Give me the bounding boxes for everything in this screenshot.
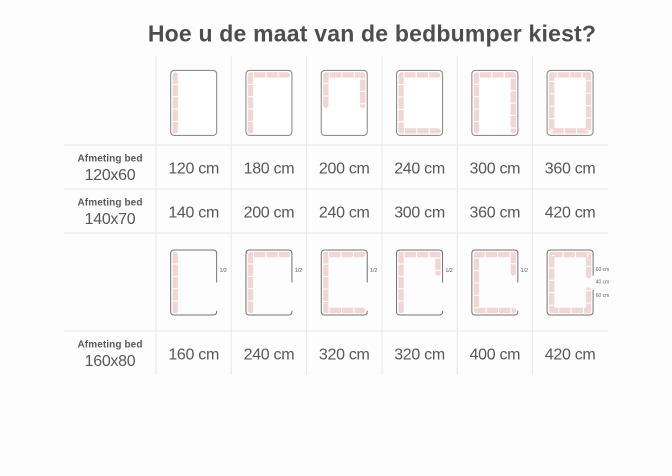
svg-text:140x70: 140x70 (85, 211, 136, 228)
svg-text:60 cm: 60 cm (596, 267, 610, 273)
svg-text:Afmeting bed: Afmeting bed (77, 198, 142, 209)
svg-text:240 cm: 240 cm (244, 346, 295, 363)
svg-text:420 cm: 420 cm (545, 204, 596, 221)
svg-text:200 cm: 200 cm (244, 204, 295, 221)
svg-text:240 cm: 240 cm (319, 204, 370, 221)
svg-text:240 cm: 240 cm (394, 160, 445, 177)
svg-text:180 cm: 180 cm (244, 160, 295, 177)
svg-text:140 cm: 140 cm (168, 204, 219, 221)
svg-text:300 cm: 300 cm (470, 160, 521, 177)
svg-text:1/2: 1/2 (295, 268, 302, 274)
svg-text:160 cm: 160 cm (168, 346, 219, 363)
svg-text:360 cm: 360 cm (470, 204, 521, 221)
svg-text:200 cm: 200 cm (319, 160, 370, 177)
svg-text:Hoe u de maat van de bedbumper: Hoe u de maat van de bedbumper kiest? (148, 20, 596, 46)
svg-text:160x80: 160x80 (85, 353, 136, 370)
svg-text:420 cm: 420 cm (545, 346, 596, 363)
svg-text:40 cm: 40 cm (596, 279, 610, 285)
svg-text:1/2: 1/2 (370, 268, 377, 274)
svg-text:1/2: 1/2 (219, 268, 226, 274)
svg-text:120 cm: 120 cm (168, 160, 219, 177)
svg-text:60 cm: 60 cm (596, 293, 610, 299)
svg-text:1/2: 1/2 (521, 268, 528, 274)
svg-text:Afmeting bed: Afmeting bed (77, 154, 142, 165)
svg-text:360 cm: 360 cm (545, 160, 596, 177)
svg-text:Afmeting bed: Afmeting bed (77, 340, 142, 351)
svg-text:320 cm: 320 cm (319, 346, 370, 363)
svg-text:120x60: 120x60 (85, 167, 136, 184)
svg-text:400 cm: 400 cm (470, 346, 521, 363)
svg-text:300 cm: 300 cm (394, 204, 445, 221)
svg-text:320 cm: 320 cm (394, 346, 445, 363)
svg-text:1/2: 1/2 (445, 268, 452, 274)
